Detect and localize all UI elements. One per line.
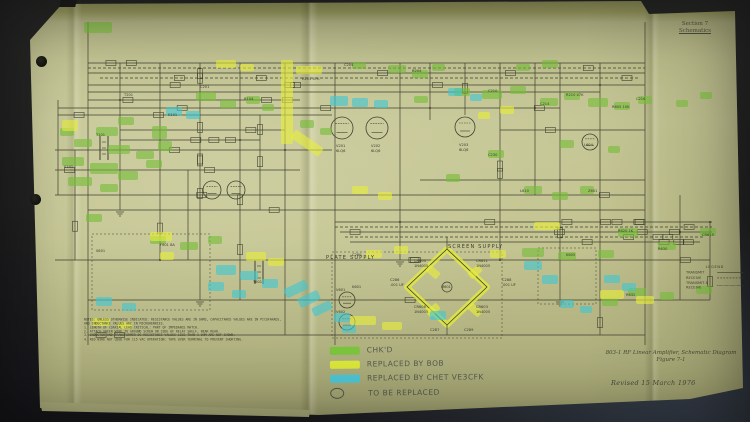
blue-highlighter-mark — [297, 290, 321, 308]
green-highlighter-mark — [352, 62, 366, 69]
yellow-highlight-swatch — [330, 360, 360, 368]
legend-row-receive: RECEIVE — [686, 276, 744, 280]
blue-highlighter-mark — [96, 297, 112, 306]
component-label: R210 47K — [566, 93, 584, 97]
component-label: T201 — [123, 93, 133, 97]
green-highlighter-mark — [446, 174, 460, 182]
green-highlighter-mark — [414, 96, 428, 103]
legend-label: RECEIVE — [686, 276, 717, 280]
supply-section-label: PLATE SUPPLY — [326, 255, 375, 261]
component-label: C288 — [502, 278, 512, 282]
component-label: V203 — [459, 143, 468, 147]
blue-highlighter-mark — [232, 290, 246, 298]
component-label: C201 — [200, 85, 209, 89]
green-highlighter-mark — [196, 92, 216, 101]
junction-dot — [399, 221, 401, 223]
green-highlighter-mark — [136, 151, 154, 159]
circle-swatch — [330, 388, 344, 399]
green-highlighter-mark — [388, 65, 406, 73]
green-highlighter-mark — [100, 184, 118, 192]
component-label: C204 — [344, 63, 354, 67]
component-label: V602 — [336, 310, 345, 314]
component-label: S101 — [64, 165, 73, 169]
tube-symbol — [366, 117, 388, 139]
green-highlighter-mark — [660, 292, 674, 300]
component-label: V601 — [336, 288, 345, 292]
yellow-highlighter-mark — [350, 316, 376, 325]
component-label: R204 — [412, 69, 422, 73]
yellow-highlighter-mark — [62, 120, 78, 131]
marker-key-row: REPLACED BY CHET VE3CFK — [330, 372, 500, 383]
component-label: L604 — [584, 143, 594, 147]
green-highlighter-mark — [700, 92, 712, 99]
blue-highlighter-mark — [560, 300, 574, 308]
component-label: T101 — [95, 133, 105, 137]
junction-dot — [559, 179, 561, 181]
component-label: 6LQ6 — [459, 148, 469, 152]
blue-highlight-swatch — [330, 374, 360, 382]
component-label: F601 8A — [160, 243, 175, 247]
marker-key-row: TO BE REPLACED — [330, 386, 500, 399]
blue-highlighter-mark — [122, 303, 136, 311]
blue-highlighter-mark — [470, 94, 482, 101]
junction-dot — [679, 231, 681, 233]
component-label: 6LQ6 — [336, 149, 346, 153]
yellow-highlighter-mark — [500, 106, 514, 114]
component-label: R620 1K — [618, 229, 634, 233]
junction-dot — [429, 107, 431, 109]
blue-highlighter-mark — [216, 265, 236, 275]
green-highlighter-mark — [118, 117, 134, 125]
green-highlighter-mark — [262, 104, 274, 111]
blue-highlighter-mark — [186, 111, 200, 119]
component-label: L610 — [520, 189, 530, 193]
component-label: .001 UF — [390, 283, 404, 287]
tube-symbol — [455, 117, 475, 137]
component-label: S601 — [96, 249, 105, 253]
yellow-highlighter-mark — [478, 112, 490, 119]
component-label: CR603 — [476, 305, 488, 309]
component-label: K605 — [566, 253, 575, 257]
component-label: 1N4005 — [414, 264, 428, 268]
green-highlighter-mark — [516, 64, 530, 71]
green-highlighter-mark — [90, 163, 118, 174]
blue-highlighter-mark — [374, 100, 388, 108]
component-label: M601 — [441, 285, 451, 289]
marker-key-text: REPLACED BY BOB — [367, 359, 444, 369]
tube-symbol — [582, 134, 598, 150]
component-label: V202 — [371, 144, 380, 148]
yellow-highlighter-mark — [394, 246, 408, 254]
marker-key-row: CHK'D — [330, 344, 500, 355]
component-label: R605 10K — [612, 105, 630, 109]
legend-row-transmit: TRANSMIT — [686, 270, 744, 274]
blue-highlighter-mark — [622, 283, 636, 291]
green-highlighter-mark — [108, 145, 130, 154]
component-label: R104 — [244, 97, 254, 101]
component-label: K101 — [168, 113, 177, 117]
component-label: C289 — [464, 328, 474, 332]
caption-figure-number: Figure 7-1 — [598, 357, 744, 364]
junction-dot — [119, 99, 121, 101]
green-highlighter-mark — [208, 236, 222, 244]
yellow-highlighter-mark — [160, 252, 174, 260]
junction-dot — [499, 259, 501, 261]
green-highlighter-mark — [320, 128, 332, 135]
green-highlighter-mark — [510, 86, 526, 94]
yellow-highlighter-mark — [636, 296, 654, 304]
section-number: Section 7 — [664, 21, 726, 28]
line-style-legend: LEGEND TRANSMIT RECEIVE TRANSMIT & RECEI… — [686, 265, 744, 291]
blue-highlighter-mark — [334, 313, 350, 322]
junction-dot — [284, 149, 286, 151]
green-highlighter-mark — [608, 146, 620, 153]
legend-label: TRANSMIT — [686, 270, 717, 274]
component-label: R632 — [626, 293, 635, 297]
blue-highlighter-mark — [330, 96, 348, 106]
caption-title: 803-1 RF Linear Amplifier, Schematic Dia… — [598, 350, 744, 357]
green-highlighter-mark — [158, 141, 172, 151]
green-highlighter-mark — [86, 214, 102, 222]
component-label: 6LQ6 — [371, 149, 381, 153]
blue-highlighter-mark — [542, 275, 558, 284]
marker-key-text: REPLACED BY CHET VE3CFK — [367, 372, 484, 382]
component-label: T601 — [252, 280, 262, 284]
green-highlighter-mark — [118, 171, 138, 180]
component-label: .001 UF — [502, 283, 516, 287]
handwritten-marker-key: CHK'D REPLACED BY BOB REPLACED BY CHET V… — [330, 344, 501, 404]
component-label: 1N4005 — [476, 310, 490, 314]
green-highlighter-mark — [300, 120, 314, 128]
blue-highlighter-mark — [524, 261, 542, 270]
yellow-highlighter-mark — [378, 192, 392, 200]
component-label: C286 — [390, 278, 400, 282]
component-label: CR604 — [414, 259, 427, 263]
tube-symbol — [203, 181, 221, 199]
blue-highlighter-mark — [240, 271, 258, 280]
marker-key-text: CHK'D — [367, 345, 393, 354]
note-line: 4. RED WIRE NOT USED FOR 115 VAC OPERATI… — [84, 337, 296, 341]
green-highlighter-mark — [602, 298, 618, 306]
yellow-highlighter-mark — [600, 290, 624, 299]
figure-caption: 803-1 RF Linear Amplifier, Schematic Dia… — [598, 350, 744, 365]
component-label: CR611 — [476, 259, 488, 263]
solid-line-sample — [717, 272, 743, 273]
blue-highlighter-mark — [352, 98, 368, 107]
dashdot-line-sample — [717, 285, 743, 286]
component-label: CR608 — [414, 305, 427, 309]
yellow-highlighter-mark — [268, 258, 284, 266]
component-label: Z601 — [588, 189, 597, 193]
green-highlighter-mark — [522, 248, 544, 257]
blue-highlighter-mark — [604, 275, 620, 283]
blue-highlighter-mark — [342, 325, 356, 333]
component-label: C214 — [540, 102, 550, 106]
component-label: C210 — [488, 89, 498, 93]
component-label: C287 — [430, 328, 439, 332]
section-title: Schematics — [664, 28, 726, 35]
photo-of-schematic: V2016LQ6V2026LQ6V2036LQ6CR6041N4005CR611… — [0, 0, 750, 422]
green-highlighter-mark — [676, 100, 688, 107]
legend-title: LEGEND — [686, 265, 744, 269]
yellow-highlighter-mark — [296, 66, 322, 74]
blue-highlighter-mark — [430, 311, 446, 320]
yellow-highlighter-mark — [290, 129, 324, 157]
marker-key-row: REPLACED BY BOB — [330, 358, 500, 369]
green-highlighter-mark — [152, 126, 167, 139]
legend-row-transmit-receive: TRANSMIT & RECEIVE — [686, 281, 744, 289]
yellow-highlighter-mark — [534, 222, 560, 230]
junction-dot — [534, 107, 536, 109]
revision-date: Revised 15 March 1976 — [611, 379, 696, 387]
green-highlighter-mark — [146, 160, 162, 168]
blue-highlighter-mark — [448, 88, 462, 96]
green-highlighter-mark — [74, 139, 92, 147]
supply-section-label: SCREEN SUPPLY — [448, 244, 503, 250]
component-label: K601 — [352, 285, 361, 289]
section-corner-label: Section 7 Schematics — [664, 21, 726, 36]
blue-highlighter-mark — [580, 306, 592, 313]
green-highlighter-mark — [552, 192, 568, 200]
legend-label: TRANSMIT & RECEIVE — [686, 281, 717, 289]
green-highlighter-mark — [432, 64, 445, 71]
green-highlight-swatch — [330, 346, 360, 354]
junction-dot — [709, 221, 711, 223]
blue-highlighter-mark — [262, 279, 278, 288]
component-label: 1N4005 — [476, 264, 490, 268]
yellow-highlighter-mark — [281, 60, 293, 144]
component-label: R201 47K — [302, 77, 320, 81]
yellow-highlighter-mark — [150, 232, 172, 241]
yellow-highlighter-mark — [382, 322, 402, 330]
junction-dot — [239, 139, 241, 141]
component-label: CR615 — [702, 233, 714, 237]
green-highlighter-mark — [542, 60, 558, 68]
blue-highlighter-mark — [311, 300, 333, 317]
tube-symbol — [227, 181, 245, 199]
notes-block: NOTES: UNLESS OTHERWISE INDICATED: RESIS… — [84, 318, 296, 341]
dashed-line-sample — [717, 278, 743, 279]
green-highlighter-mark — [180, 242, 198, 250]
component-label: C216 — [636, 97, 646, 101]
green-highlighter-mark — [220, 100, 236, 108]
yellow-highlighter-mark — [216, 60, 236, 68]
yellow-highlighter-mark — [240, 64, 254, 71]
green-highlighter-mark — [560, 140, 574, 148]
component-label: V201 — [336, 144, 345, 148]
marker-key-text: TO BE REPLACED — [368, 388, 440, 398]
green-highlighter-mark — [598, 250, 614, 258]
component-label: R630 — [658, 247, 668, 251]
green-highlighter-mark — [68, 177, 92, 186]
green-highlighter-mark — [84, 22, 112, 33]
component-label: 1N4005 — [414, 310, 428, 314]
yellow-highlighter-mark — [490, 250, 506, 258]
yellow-highlighter-mark — [246, 252, 266, 261]
component-label: C230 — [488, 153, 498, 157]
yellow-highlighter-mark — [352, 186, 368, 194]
tube-symbol — [331, 117, 353, 139]
junction-dot — [599, 84, 601, 86]
blue-highlighter-mark — [208, 282, 224, 291]
green-highlighter-mark — [588, 98, 608, 107]
